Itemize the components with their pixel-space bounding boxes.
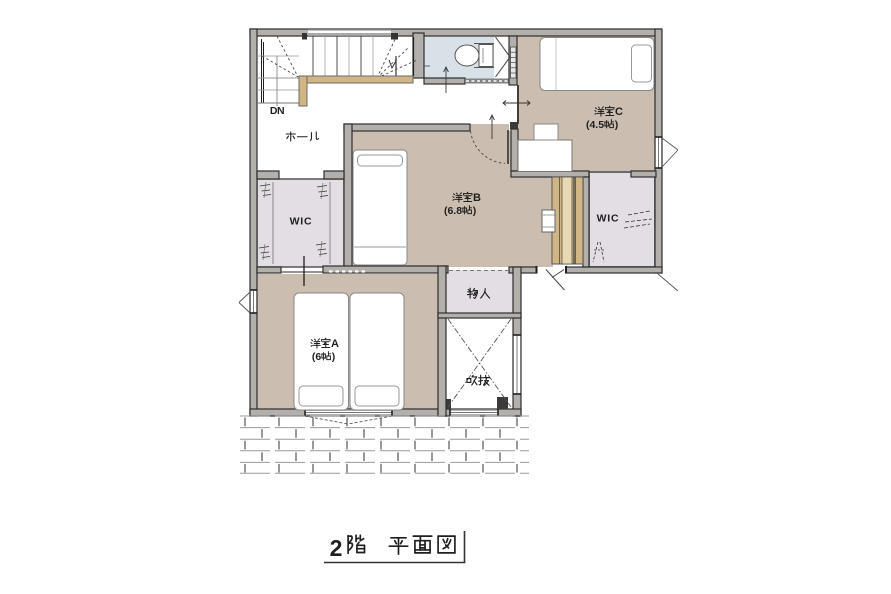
svg-text:): ) — [332, 351, 336, 363]
svg-text:WIC: WIC — [290, 216, 313, 228]
svg-text:(6.8: (6.8 — [444, 205, 462, 217]
svg-text:C: C — [615, 106, 623, 118]
svg-text:(4.5: (4.5 — [586, 119, 604, 131]
svg-text:): ) — [615, 119, 619, 131]
svg-text:DN: DN — [270, 105, 284, 117]
svg-text:2: 2 — [330, 535, 343, 561]
svg-text:WIC: WIC — [597, 213, 620, 225]
svg-text:A: A — [331, 338, 339, 350]
svg-text:): ) — [473, 205, 477, 217]
svg-text:B: B — [473, 192, 481, 204]
svg-text:(6: (6 — [312, 351, 321, 363]
